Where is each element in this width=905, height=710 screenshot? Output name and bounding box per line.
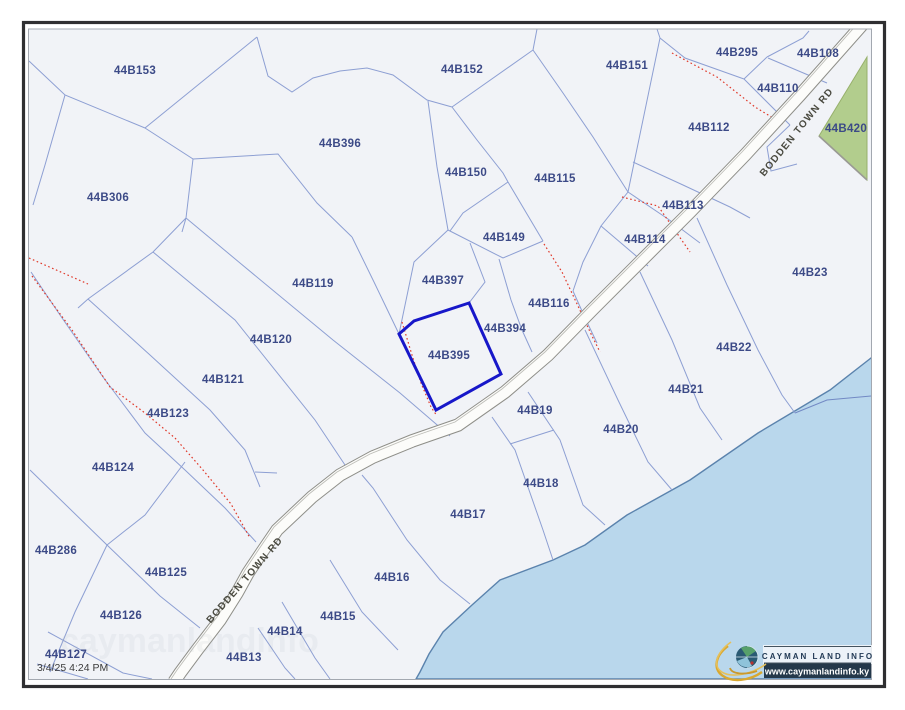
parcel-label-44B14[interactable]: 44B14: [267, 626, 303, 638]
parcel-label-44B21[interactable]: 44B21: [668, 384, 704, 396]
parcel-label-44B149[interactable]: 44B149: [483, 232, 525, 244]
parcel-label-44B125[interactable]: 44B125: [145, 567, 187, 579]
parcel-label-44B17[interactable]: 44B17: [450, 509, 485, 521]
parcel-label-44B420[interactable]: 44B420: [825, 123, 867, 135]
parcel-label-44B397[interactable]: 44B397: [422, 275, 464, 287]
map-viewer-page: caymanlandinfo 44B15344B30644B39644B1524…: [0, 0, 905, 710]
parcel-label-44B13[interactable]: 44B13: [226, 652, 261, 664]
parcel-label-44B116[interactable]: 44B116: [528, 298, 569, 310]
print-timestamp: 3/4/25 4:24 PM: [37, 662, 108, 674]
parcel-label-44B22[interactable]: 44B22: [716, 342, 751, 354]
parcel-label-44B153[interactable]: 44B153: [114, 65, 156, 77]
parcel-label-44B114[interactable]: 44B114: [624, 234, 666, 246]
parcel-label-44B110[interactable]: 44B110: [757, 83, 798, 95]
parcel-label-44B19[interactable]: 44B19: [517, 405, 552, 417]
parcel-label-44B15[interactable]: 44B15: [320, 611, 356, 623]
parcel-label-44B152[interactable]: 44B152: [441, 64, 483, 76]
parcel-label-44B108[interactable]: 44B108: [797, 48, 839, 60]
parcel-label-44B18[interactable]: 44B18: [523, 478, 559, 490]
parcel-label-44B120[interactable]: 44B120: [250, 334, 292, 346]
parcel-label-44B124[interactable]: 44B124: [92, 462, 134, 474]
logo-title-text: CAYMAN LAND INFO: [762, 652, 874, 661]
parcel-label-44B20[interactable]: 44B20: [603, 424, 638, 436]
parcel-label-44B121[interactable]: 44B121: [202, 374, 244, 386]
parcel-label-44B306[interactable]: 44B306: [87, 192, 129, 204]
parcel-label-44B23[interactable]: 44B23: [792, 267, 827, 279]
parcel-label-44B150[interactable]: 44B150: [445, 167, 487, 179]
parcel-label-44B119[interactable]: 44B119: [292, 278, 333, 290]
parcel-label-44B396[interactable]: 44B396: [319, 138, 361, 150]
parcel-label-44B395[interactable]: 44B395: [428, 350, 470, 362]
parcel-label-44B286[interactable]: 44B286: [35, 545, 77, 557]
parcel-label-44B151[interactable]: 44B151: [606, 60, 648, 72]
parcel-label-44B394[interactable]: 44B394: [484, 323, 526, 335]
parcel-label-44B126[interactable]: 44B126: [100, 610, 142, 622]
parcel-label-44B295[interactable]: 44B295: [716, 47, 758, 59]
cadastral-map-canvas[interactable]: caymanlandinfo 44B15344B30644B39644B1524…: [0, 0, 905, 710]
parcel-label-44B16[interactable]: 44B16: [374, 572, 409, 584]
logo-url-text[interactable]: www.caymanlandinfo.ky: [764, 667, 869, 677]
parcel-label-44B115[interactable]: 44B115: [534, 173, 576, 185]
parcel-label-44B123[interactable]: 44B123: [147, 408, 189, 420]
parcel-label-44B112[interactable]: 44B112: [688, 122, 729, 134]
parcel-label-44B113[interactable]: 44B113: [662, 200, 703, 212]
parcel-label-44B127[interactable]: 44B127: [45, 649, 87, 661]
